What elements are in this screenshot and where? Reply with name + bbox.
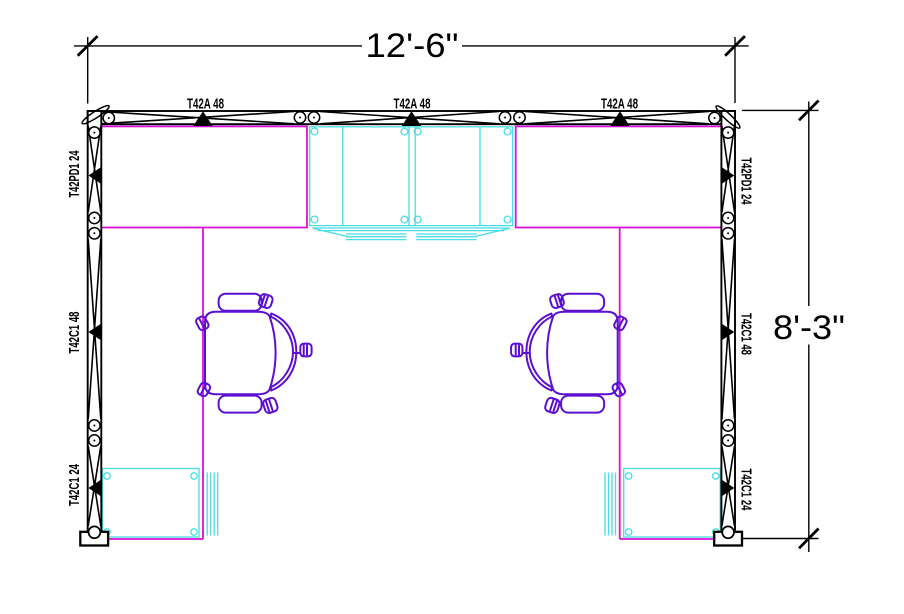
svg-text:T42C1 48: T42C1 48: [66, 312, 83, 354]
svg-text:T42PD1 24: T42PD1 24: [66, 150, 83, 197]
svg-text:T42C1 24: T42C1 24: [738, 469, 755, 511]
svg-text:T42C1 48: T42C1 48: [738, 313, 755, 355]
svg-text:8'-3": 8'-3": [773, 309, 845, 347]
svg-text:T42A 48: T42A 48: [187, 95, 224, 112]
svg-text:T42PD1 24: T42PD1 24: [738, 158, 755, 205]
svg-text:T42C1 24: T42C1 24: [66, 464, 83, 506]
svg-text:T42A 48: T42A 48: [394, 95, 431, 112]
svg-text:T42A 48: T42A 48: [601, 95, 638, 112]
svg-text:12'-6": 12'-6": [366, 27, 459, 65]
